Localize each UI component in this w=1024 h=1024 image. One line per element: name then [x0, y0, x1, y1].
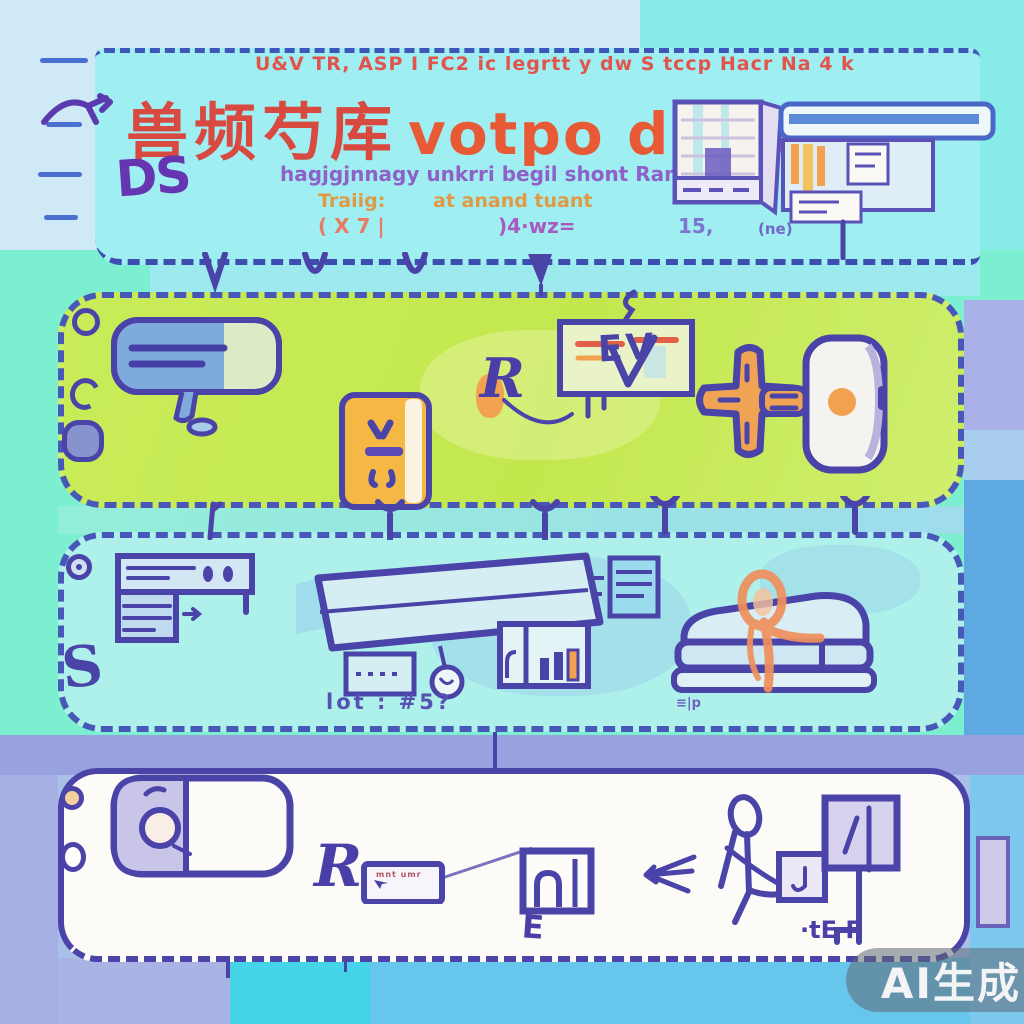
nut-icon — [62, 420, 104, 462]
bg-right-steelblue — [964, 480, 1024, 736]
ai-watermark-label: AI生成 — [881, 950, 1021, 1011]
arrow-scribble-icon — [40, 86, 118, 138]
card-text: mnt umr — [376, 870, 434, 879]
middle-bottom-connector — [493, 732, 497, 770]
dial-dot — [76, 564, 82, 570]
header-col2-label: at anand tuant — [433, 190, 592, 212]
desk-server-icon — [104, 548, 264, 646]
motion-dash — [38, 172, 82, 177]
speech-bubble-icon — [104, 310, 294, 438]
note-cards-icon — [791, 192, 861, 222]
middle-caption: lot : #5? — [326, 690, 452, 714]
bottom-scribble: ·tE Γ — [800, 916, 861, 944]
bg-bottom-strip-cyan — [230, 958, 370, 1024]
bottom-e-label: E — [521, 907, 545, 946]
bottom-tick — [344, 956, 347, 972]
toolbar-bar-icon — [781, 104, 993, 138]
header-topline: U&V TR, ASP I FC2 ic legrtt y dw S tccp … — [255, 53, 955, 75]
bottom-tick — [226, 956, 230, 978]
dial-icon — [66, 554, 92, 580]
header-badge: DS — [114, 146, 191, 209]
bg-right-lightblue — [964, 430, 1024, 480]
sofa-bow-icon — [666, 566, 891, 698]
header-col1-value: ( X 7 | — [318, 214, 385, 238]
bg-bottom-strip-lavender — [58, 958, 230, 1024]
dot-icon-bottom — [60, 842, 86, 872]
edge-rect — [976, 836, 1010, 928]
s-label: S — [59, 632, 106, 702]
plus-cross-icon — [688, 338, 810, 470]
header-sketch — [663, 92, 1008, 260]
header-col2-value: )4·wz= — [498, 214, 576, 238]
bottom-r-label: R — [314, 832, 362, 900]
power-bank-icon — [337, 390, 434, 512]
motion-dash — [40, 58, 88, 63]
calendar-grid-icon — [675, 102, 781, 212]
bar-chart-house-icon — [500, 624, 588, 686]
server-stack-icon — [594, 558, 658, 616]
bg-right-periwinkle — [964, 300, 1024, 430]
sheet-assembly — [288, 550, 668, 708]
bg-bottom-left-lavender — [0, 775, 58, 1024]
dotted-box-icon — [346, 654, 414, 694]
green-middle-connectors — [150, 496, 890, 540]
window-letters: EV — [597, 326, 658, 370]
poster-canvas: U&V TR, ASP I FC2 ic legrtt y dw S tccp … — [0, 0, 1024, 1024]
middle-caption-2: ≡|p — [676, 696, 701, 711]
monitor-box-icon — [515, 845, 599, 915]
ai-watermark-badge: AI生成 — [846, 948, 1024, 1012]
smart-speaker-icon — [798, 332, 893, 477]
motion-dash — [44, 215, 78, 220]
dot-icon-top — [60, 786, 84, 810]
left-arrow-icon — [638, 845, 700, 901]
ring-icon — [72, 308, 100, 336]
r-scribble-icon: R — [480, 346, 525, 410]
washer-device-icon — [108, 772, 298, 880]
header-subtitle: hagjgjnnagy unkrri begil shont Ramt — [280, 162, 695, 186]
header-col1-label: Traiig: — [318, 190, 385, 212]
